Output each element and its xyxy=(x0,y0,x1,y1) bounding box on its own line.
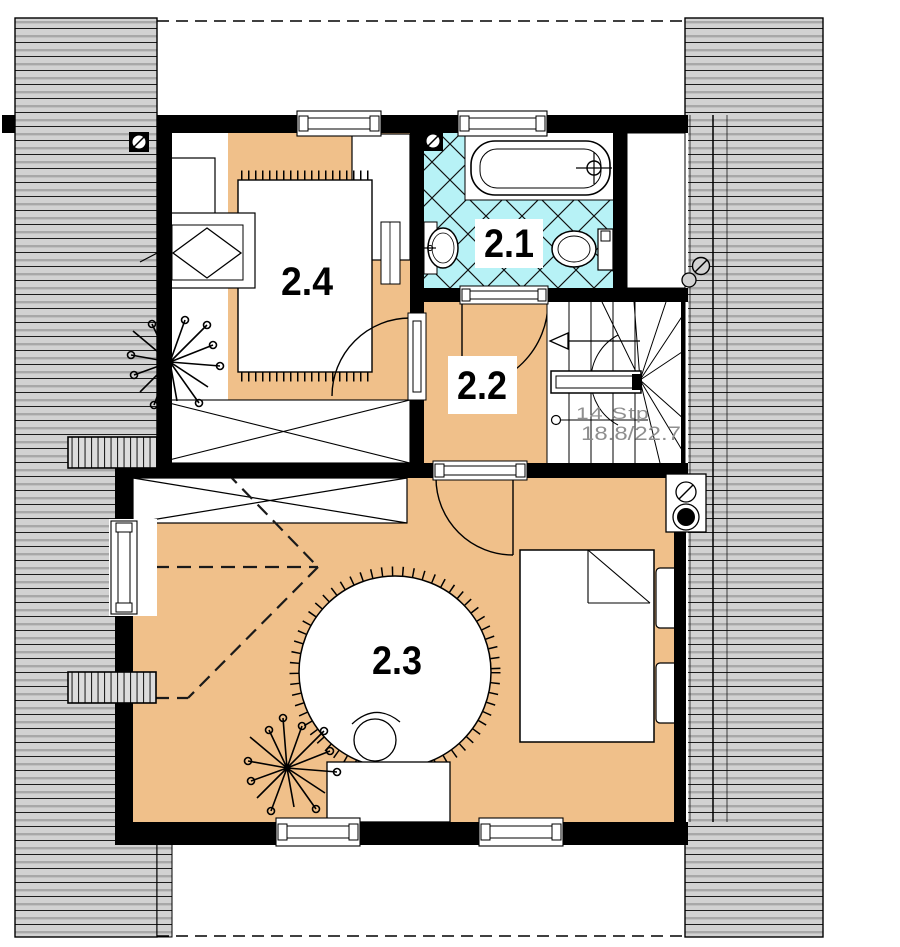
wall-left-lower xyxy=(115,463,133,822)
room-label-2-2: 2.2 xyxy=(457,364,507,408)
room-hall: 2.2 xyxy=(424,302,548,463)
room-label-2-4: 2.4 xyxy=(281,260,334,304)
door-threshold xyxy=(460,286,548,304)
wall-right-stairs xyxy=(681,302,685,463)
door-threshold xyxy=(408,313,426,400)
wall-interior-horizontal xyxy=(115,463,688,478)
window xyxy=(109,519,157,616)
floor-plan-drawing: 2.1 2.2 14 Stp 18.8/22.7 xyxy=(0,0,900,947)
roof-window-icon xyxy=(68,437,157,468)
room-label-2-1: 2.1 xyxy=(484,222,534,266)
bathtub-icon xyxy=(471,141,612,195)
wall-bottom xyxy=(115,822,688,845)
radiator xyxy=(381,222,400,284)
eaves-wall-stub xyxy=(2,115,15,133)
floor-plan-page: 2.1 2.2 14 Stp 18.8/22.7 xyxy=(0,0,900,947)
wardrobe xyxy=(133,478,407,523)
wall-top xyxy=(157,115,688,133)
window xyxy=(276,818,360,846)
window xyxy=(458,111,547,136)
low-cabinet xyxy=(157,400,410,463)
room-label-2-3: 2.3 xyxy=(372,639,422,683)
roof-window-icon xyxy=(68,672,156,703)
stair-rise-run-text: 18.8/22.7 xyxy=(581,424,681,445)
chimney-icon xyxy=(666,474,706,532)
toilet-icon xyxy=(552,229,613,270)
vent-pipe-icon xyxy=(423,131,443,151)
wall-left-upper xyxy=(157,115,172,463)
window xyxy=(479,818,563,846)
vent-pipe-icon xyxy=(129,132,149,152)
desk xyxy=(327,762,450,822)
stair-steps-text: 14 Stp xyxy=(576,404,650,423)
wall-closet-bottom xyxy=(627,288,688,302)
wall-bathroom-right xyxy=(613,133,627,302)
wall-interior-vertical xyxy=(410,133,424,463)
door-threshold xyxy=(433,461,527,480)
closet-room xyxy=(627,133,685,288)
handrail xyxy=(551,371,642,393)
window xyxy=(297,111,381,136)
room-bedroom-large: 2.3 xyxy=(133,473,681,822)
staircase: 14 Stp 18.8/22.7 xyxy=(547,302,685,463)
room-bathroom: 2.1 xyxy=(424,132,617,288)
